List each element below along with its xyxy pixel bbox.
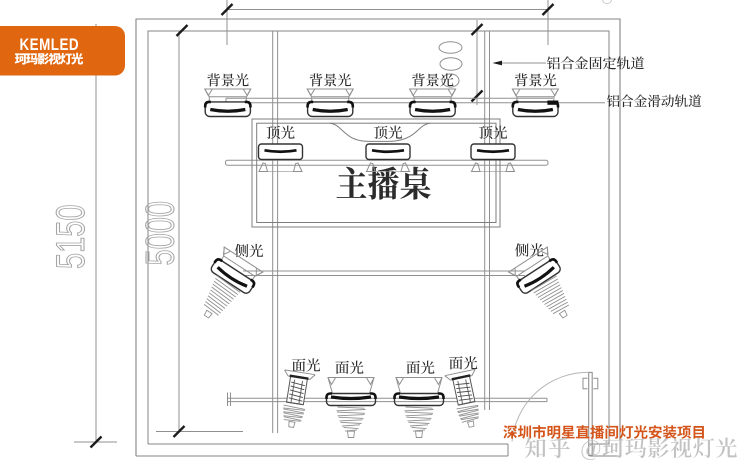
svg-text:5000: 5000 <box>138 201 183 266</box>
svg-text:5150: 5150 <box>49 204 94 269</box>
svg-text:KEMLED: KEMLED <box>20 35 80 54</box>
